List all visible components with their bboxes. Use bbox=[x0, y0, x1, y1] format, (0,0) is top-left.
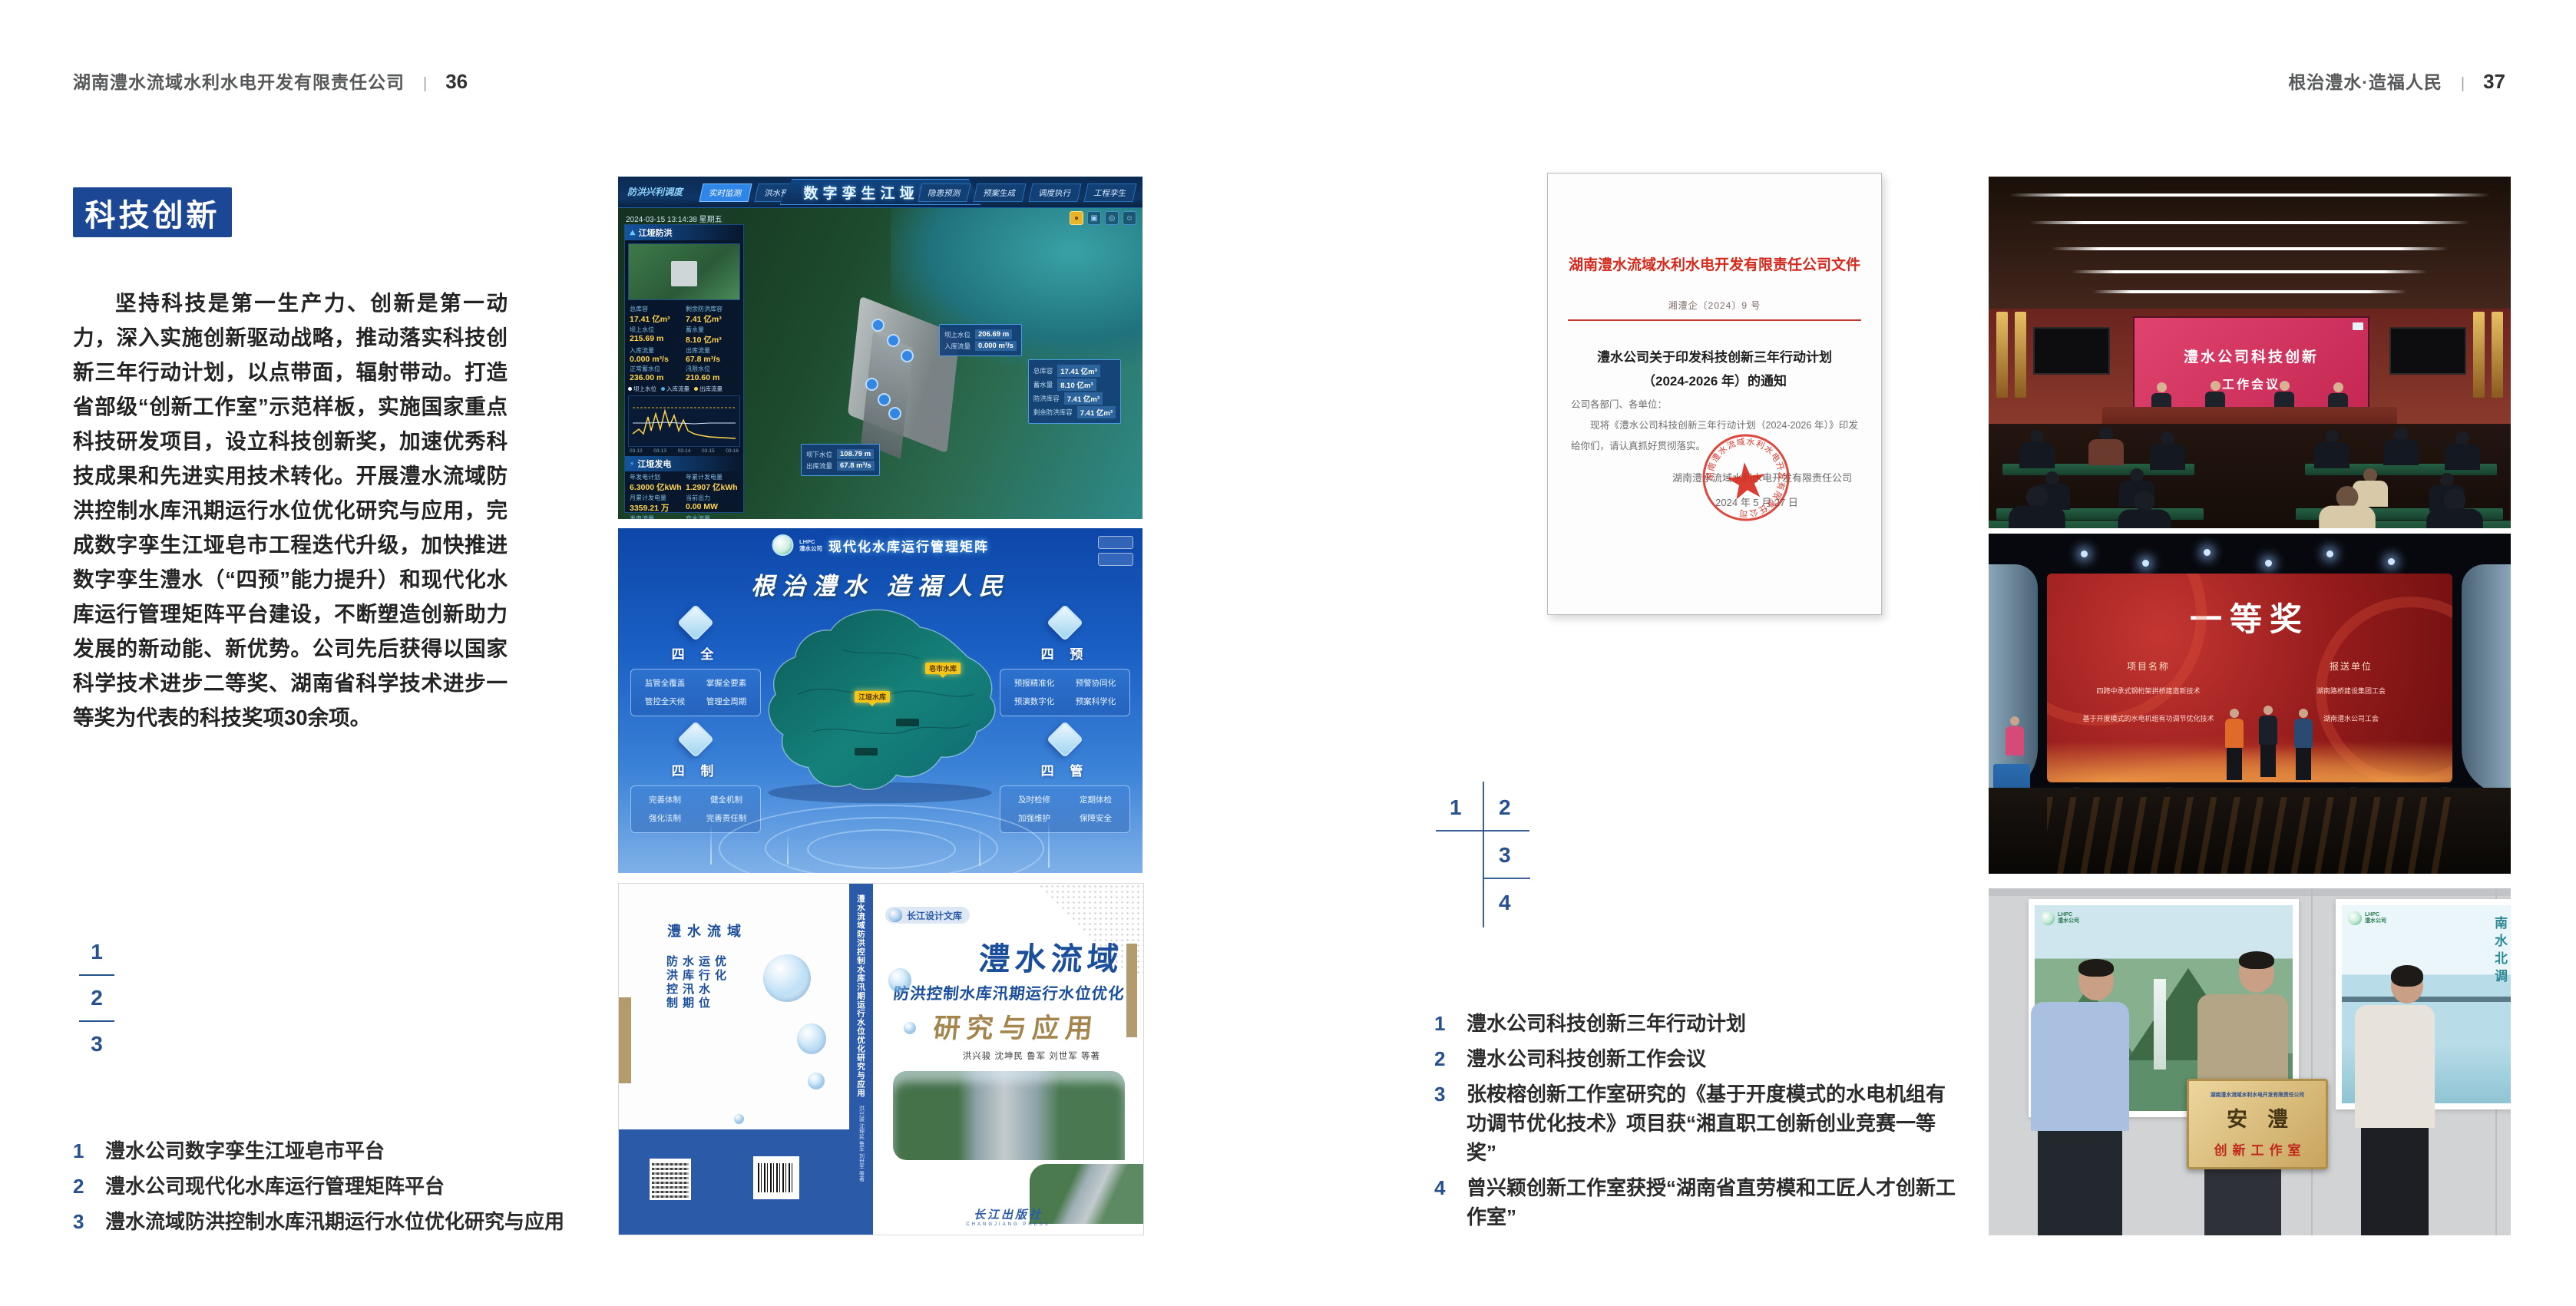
photo-matrix-dashboard: LHPC澧水公司 现代化水库运行管理矩阵 根治澧水 造福人民 江垭水库 皂市水库… bbox=[618, 528, 1143, 873]
caption-row: 1 澧水公司数字孪生江垭皂市平台 bbox=[73, 1136, 580, 1165]
stat-label: 年发电计划 bbox=[630, 473, 683, 481]
x-tick: 03-14 bbox=[678, 448, 691, 454]
chip-value: 17.41 亿m³ bbox=[1057, 365, 1100, 377]
stage-light bbox=[2326, 551, 2333, 557]
map-label-small bbox=[855, 748, 878, 755]
chip-label: 剩余防洪库容 bbox=[1033, 408, 1073, 417]
captions-right: 1 澧水公司科技创新三年行动计划 2 澧水公司科技创新工作会议 3 张桉榕创新工… bbox=[1434, 1009, 1972, 1238]
wall-trim bbox=[1989, 888, 2511, 896]
light-pillar bbox=[1048, 820, 1050, 868]
logo-subtext: 澧水公司 bbox=[799, 545, 822, 552]
dam-video-thumbnail bbox=[628, 243, 740, 300]
stat-value: 67.8 m³/s bbox=[686, 355, 739, 364]
group-card: 预报精准化 预警协同化 预演数字化 预案科学化 bbox=[1000, 669, 1130, 716]
magazine-spread: 湖南澧水流域水利水电开发有限责任公司 | 36 科技创新 坚持科技是第一生产力、… bbox=[0, 0, 2576, 1306]
section-title-box: 科技创新 bbox=[73, 187, 232, 237]
stat-label: 汛限水位 bbox=[686, 365, 739, 373]
matrix-header: LHPC澧水公司 现代化水库运行管理矩阵 bbox=[772, 534, 989, 556]
stat-label: 发电流量 bbox=[630, 514, 683, 519]
light-strip bbox=[2009, 193, 2490, 197]
caption-text: 澧水公司科技创新三年行动计划 bbox=[1467, 1009, 1746, 1038]
photo-meeting: 澧水公司科技创新 工作会议 bbox=[1989, 177, 2511, 528]
meeting-ceiling bbox=[1989, 177, 2511, 309]
person-left bbox=[2062, 962, 2129, 1235]
chip-value: 206.69 m bbox=[975, 329, 1012, 339]
group-item: 健全机制 bbox=[696, 791, 757, 809]
audience-figure bbox=[2019, 430, 2055, 468]
light-pillar bbox=[710, 825, 712, 865]
caption-number: 1 bbox=[73, 1136, 91, 1165]
wall-seam bbox=[2311, 888, 2313, 1235]
photo-plaque-group: LHPC澧水公司 LHPC澧水公司 南水北调 湖南澧水流域水利水电开发 bbox=[1989, 888, 2511, 1235]
photo-award-ceremony: 一等奖 项目名称 报送单位 四跨中承式钢桁架拱桥建造新技术 湖南路桥建设集团工会… bbox=[1989, 534, 2511, 874]
stat-label: 入库流量 bbox=[630, 346, 683, 355]
award-unit: 湖南路桥建设集团工会 bbox=[2250, 686, 2452, 696]
figure-index-1: 1 bbox=[79, 940, 114, 964]
chip-label: 防洪库容 bbox=[1033, 394, 1060, 403]
x-tick: 03-13 bbox=[653, 448, 666, 454]
x-tick: 03-16 bbox=[726, 448, 739, 454]
award-project: 基于开度模式的水电机组有功调节优化技术 bbox=[2047, 713, 2250, 723]
host-figure bbox=[2006, 716, 2024, 755]
matrix-title: 现代化水库运行管理矩阵 bbox=[828, 536, 989, 555]
group-siyu: 四 预 预报精准化 预警协同化 预演数字化 预案科学化 bbox=[1000, 610, 1130, 716]
group-item: 强化法制 bbox=[634, 809, 696, 828]
tab-hazard-forecast: 隐患预测 bbox=[918, 184, 971, 202]
caption-row: 3 澧水流域防洪控制水库汛期运行水位优化研究与应用 bbox=[73, 1207, 580, 1236]
caption-text: 澧水流域防洪控制水库汛期运行水位优化研究与应用 bbox=[105, 1207, 564, 1236]
plaque-name: 安澧 bbox=[2207, 1103, 2308, 1132]
stat-label: 剩余防洪库容 bbox=[686, 305, 739, 313]
floor-reflection bbox=[2047, 797, 2452, 874]
figure-index-2: 2 bbox=[79, 986, 114, 1010]
stat-value: 8.10 亿m³ bbox=[686, 334, 739, 346]
water-droplet bbox=[808, 1073, 825, 1089]
light-strip bbox=[2030, 221, 2469, 224]
group-name: 四 预 bbox=[1000, 643, 1130, 663]
awardee-orange bbox=[2225, 709, 2244, 780]
stat-value: 3359.21 万 bbox=[630, 502, 683, 514]
tab-plan-generate: 预案生成 bbox=[973, 184, 1026, 202]
group-item: 管理全周期 bbox=[696, 693, 757, 711]
chip-value: 0.000 m³/s bbox=[975, 341, 1017, 351]
group-item: 定期体检 bbox=[1065, 791, 1126, 809]
caption-row: 2 澧水公司现代化水库运行管理矩阵平台 bbox=[73, 1172, 580, 1201]
audience-figure bbox=[2445, 431, 2480, 470]
alert-icon: ● bbox=[1070, 211, 1083, 225]
audience-area bbox=[1989, 424, 2511, 528]
chip-label: 坝上水位 bbox=[944, 330, 971, 339]
stat-value: 7.41 亿m³ bbox=[686, 313, 739, 325]
gate-marker bbox=[901, 349, 914, 362]
x-tick: 03-15 bbox=[702, 448, 715, 454]
panel-header-flood: ⛰ 江垭防洪 bbox=[625, 225, 743, 240]
back-brown-tab bbox=[619, 997, 631, 1083]
group-item: 保障安全 bbox=[1065, 809, 1126, 828]
red-company-seal: 湖南澧水流域水利水电开发有限责任公司 bbox=[1695, 427, 1797, 528]
stage-light bbox=[2204, 549, 2211, 556]
screen-title-line2: 工作会议 bbox=[2222, 374, 2280, 392]
header-divider: | bbox=[423, 75, 427, 93]
poster-calligraphy: 南水北调 bbox=[2490, 916, 2509, 987]
stage-light bbox=[2265, 560, 2272, 567]
panelist-figure bbox=[2205, 381, 2225, 410]
qr-code bbox=[650, 1159, 691, 1200]
front-brown-bar bbox=[1126, 944, 1137, 1037]
back-title-1: 澧水流域 bbox=[663, 924, 744, 947]
stage-light bbox=[2388, 558, 2395, 565]
person-right bbox=[2379, 968, 2435, 1235]
panel-title: 江垭发电 bbox=[637, 458, 671, 470]
group-sizhi: 四 制 完善体制 健全机制 强化法制 完善责任制 bbox=[630, 726, 761, 833]
document-title-line2: （2024-2026 年）的通知 bbox=[1548, 369, 1881, 393]
book-front-cover: 长江设计文库 澧水流域 防洪控制水库汛期运行水位优化 研究与应用 洪兴骏 沈坤民… bbox=[873, 884, 1143, 1235]
monitor-icon bbox=[677, 604, 714, 641]
light-strip bbox=[2093, 290, 2406, 293]
award-col-unit: 报送单位 bbox=[2250, 660, 2452, 673]
group-item: 监管全覆盖 bbox=[634, 674, 696, 693]
award-project: 四跨中承式钢桁架拱桥建造新技术 bbox=[2047, 686, 2250, 696]
document-title-line1: 澧水公司关于印发科技创新三年行动计划 bbox=[1548, 346, 1881, 369]
series-badge: 长江设计文库 bbox=[885, 907, 970, 924]
screen-logo bbox=[2353, 322, 2363, 330]
light-pillar bbox=[979, 828, 980, 866]
plaque-company: 湖南澧水流域水利水电开发有限责任公司 bbox=[2211, 1090, 2304, 1098]
gate-marker bbox=[878, 393, 891, 406]
stat-label: 年累计发电量 bbox=[686, 473, 739, 481]
waterfall bbox=[2154, 979, 2166, 1070]
award-row: 基于开度模式的水电机组有功调节优化技术 湖南澧水公司工会 bbox=[2047, 713, 2452, 723]
caption-number: 3 bbox=[1434, 1080, 1453, 1167]
forecast-icon bbox=[1047, 604, 1083, 641]
power-stats-grid: 年发电计划6.3000 亿kWh 年累计发电量1.2907 亿kWh 月累计发电… bbox=[625, 471, 743, 519]
stat-value: 6.3000 亿kWh bbox=[630, 481, 683, 493]
tab-dispatch-execute: 调度执行 bbox=[1028, 184, 1081, 202]
index-vline bbox=[1483, 782, 1484, 927]
matrix-slogan: 根治澧水 造福人民 bbox=[751, 567, 1010, 601]
ripple-ring bbox=[807, 829, 956, 869]
book-title-sub: 防洪控制水库汛期运行水位优化 bbox=[892, 980, 1126, 1003]
index-hline bbox=[1483, 878, 1530, 879]
red-rule bbox=[1568, 319, 1861, 321]
gate-marker bbox=[871, 319, 885, 332]
screen-skyline bbox=[2047, 733, 2452, 782]
figure-index-3: 3 bbox=[1499, 843, 1511, 868]
group-item: 预警协同化 bbox=[1065, 674, 1126, 693]
dashboard-top-bar: 防洪兴利调度 实时监测 洪水预报 防洪预警 数字孪生江垭皂市 隐患预测 预案生成… bbox=[618, 177, 1143, 208]
chip-label: 入库流量 bbox=[944, 342, 971, 351]
group-card: 监管全覆盖 掌握全要素 管控全天候 管理全周期 bbox=[630, 669, 761, 716]
stat-label: 总库容 bbox=[630, 305, 683, 313]
x-tick: 03-12 bbox=[630, 448, 643, 454]
group-siquan: 四 全 监管全覆盖 掌握全要素 管控全天候 管理全周期 bbox=[630, 610, 761, 716]
book-title-main: 澧水流域 bbox=[977, 933, 1125, 979]
water-droplet bbox=[904, 1022, 916, 1034]
module-label: 防洪兴利调度 bbox=[627, 185, 683, 198]
tab-project-twin: 工程孪生 bbox=[1083, 184, 1136, 202]
info-chip-capacity: 总库容17.41 亿m³ 蓄水量8.10 亿m³ 防洪库容7.41 亿m³ 剩余… bbox=[1028, 359, 1121, 424]
back-title-2: 防洪控制水库汛期运行水位优化 bbox=[663, 955, 744, 1023]
section-title: 科技创新 bbox=[85, 190, 220, 235]
caption-row: 1 澧水公司科技创新三年行动计划 bbox=[1434, 1009, 1972, 1038]
audience-figure bbox=[2150, 431, 2185, 470]
figure-index-left: 1 2 3 bbox=[79, 940, 114, 1056]
book-spine: 澧水流域防洪控制水库汛期运行水位优化研究与应用 洪兴骏 沈坤民 鲁军 刘世军 等… bbox=[849, 884, 873, 1235]
gate-marker bbox=[865, 378, 878, 391]
award-col-project: 项目名称 bbox=[2047, 660, 2250, 673]
stat-label: 弃水流量 bbox=[686, 514, 739, 519]
stage-light bbox=[2142, 560, 2149, 567]
led-screen: 一等奖 项目名称 报送单位 四跨中承式钢桁架拱桥建造新技术 湖南路桥建设集团工会… bbox=[2047, 574, 2452, 782]
page-number-left: 36 bbox=[445, 70, 468, 94]
caption-number: 2 bbox=[1434, 1044, 1453, 1073]
wall-lamp bbox=[1996, 312, 2008, 398]
left-stats-panel: ⛰ 江垭防洪 总库容17.41 亿m³ 剩余防洪库容7.41 亿m³ 坝上水位2… bbox=[624, 224, 744, 513]
stat-label: 当前出力 bbox=[686, 494, 739, 502]
right-page-header: 根治澧水·造福人民 | 37 bbox=[2288, 68, 2505, 94]
audience-figure bbox=[2314, 430, 2349, 468]
plaque-title: 创新工作室 bbox=[2209, 1139, 2306, 1159]
mountain-icon: ⛰ bbox=[630, 229, 636, 237]
panel-title: 江垭防洪 bbox=[639, 226, 673, 239]
group-item: 及时检修 bbox=[1004, 791, 1065, 809]
map-label-small bbox=[896, 719, 919, 726]
dam-thumb-structure bbox=[671, 261, 698, 286]
captions-left: 1 澧水公司数字孪生江垭皂市平台 2 澧水公司现代化水库运行管理矩阵平台 3 澧… bbox=[73, 1136, 580, 1242]
wall-lamp bbox=[2015, 312, 2026, 398]
panel-header-power: ⚡ 江垭发电 bbox=[625, 456, 743, 471]
index-hline bbox=[1436, 830, 1529, 832]
caption-row: 3 张桉榕创新工作室研究的《基于开度模式的水电机组有功调节优化技术》项目获“湘直… bbox=[1434, 1080, 1972, 1167]
map-label-jiangya: 江垭水库 bbox=[855, 691, 890, 703]
legend-item: 入库流量 bbox=[666, 385, 689, 393]
wall-tv bbox=[2389, 327, 2466, 375]
caption-number: 3 bbox=[73, 1207, 91, 1236]
stat-value: 236.00 m bbox=[630, 373, 683, 382]
stat-value: 0.000 m³/s bbox=[630, 355, 683, 364]
screen-title-line1: 澧水公司科技创新 bbox=[2184, 346, 2319, 366]
publisher-name-en: CHANGJIANG PRESS bbox=[873, 1222, 1143, 1227]
group-item: 预案科学化 bbox=[1065, 693, 1126, 711]
group-siguan: 四 管 及时检修 定期体检 加强维护 保障安全 bbox=[1000, 726, 1130, 833]
group-item: 完善体制 bbox=[634, 791, 696, 809]
chart-x-labels: 03-12 03-13 03-14 03-15 03-16 bbox=[625, 448, 743, 454]
company-name: 湖南澧水流域水利水电开发有限责任公司 bbox=[73, 68, 405, 94]
photo-official-document: 湖南澧水流域水利水电开发有限责任公司文件 湘澧企〔2024〕9 号 澧水公司关于… bbox=[1547, 173, 1882, 615]
gate-marker bbox=[888, 407, 901, 420]
gate-marker bbox=[887, 334, 900, 347]
toolbar-icons: ● ▣ ◎ ☺ bbox=[1070, 211, 1136, 225]
chip-value: 67.8 m³/s bbox=[837, 461, 875, 471]
light-pillar bbox=[787, 834, 789, 865]
legend-item: 坝上水位 bbox=[633, 385, 656, 393]
matrix-button bbox=[1098, 536, 1133, 549]
audience-figure bbox=[2009, 486, 2065, 528]
stat-value: 210.60 m bbox=[686, 373, 739, 382]
cover-photo-gorge-dam bbox=[893, 1071, 1125, 1160]
caption-number: 1 bbox=[1434, 1009, 1453, 1038]
stat-label: 蓄水量 bbox=[686, 326, 739, 334]
group-item: 预报精准化 bbox=[1004, 674, 1065, 693]
audience-figure bbox=[2118, 491, 2171, 529]
lhpc-logo: LHPC澧水公司 bbox=[2041, 911, 2079, 925]
stage-side-wall bbox=[2462, 564, 2511, 795]
stat-label: 坝上水位 bbox=[630, 326, 683, 334]
wall-lamp bbox=[2473, 312, 2485, 398]
caption-text: 张桉榕创新工作室研究的《基于开度模式的水电机组有功调节优化技术》项目获“湘直职工… bbox=[1467, 1080, 1958, 1167]
chip-value: 108.79 m bbox=[837, 449, 874, 459]
index-divider bbox=[79, 1020, 114, 1022]
wall-lamp bbox=[2492, 312, 2503, 398]
figure-index-1: 1 bbox=[1450, 795, 1462, 820]
flood-stats-grid: 总库容17.41 亿m³ 剩余防洪库容7.41 亿m³ 坝上水位215.69 m… bbox=[625, 303, 743, 384]
photo-digital-twin-dashboard: 防洪兴利调度 实时监测 洪水预报 防洪预警 数字孪生江垭皂市 隐患预测 预案生成… bbox=[618, 177, 1143, 519]
panelist-figure bbox=[2274, 381, 2294, 410]
group-item: 掌握全要素 bbox=[696, 674, 757, 693]
body-paragraph: 坚持科技是第一生产力、创新是第一动力，深入实施创新驱动战略，推动落实科技创新三年… bbox=[73, 286, 508, 735]
page-slogan: 根治澧水·造福人民 bbox=[2288, 68, 2442, 94]
stat-value: 17.41 亿m³ bbox=[630, 313, 683, 325]
book-authors: 洪兴骏 沈坤民 鲁军 刘世军 等著 bbox=[963, 1050, 1100, 1062]
stat-label: 正常蓄水位 bbox=[630, 365, 683, 373]
changjiang-design-logo bbox=[888, 908, 902, 922]
audience-figure bbox=[2088, 427, 2124, 465]
document-salutation: 公司各部门、各单位： bbox=[1571, 395, 1858, 415]
figure-index-3: 3 bbox=[79, 1032, 114, 1056]
locate-icon: ◎ bbox=[1105, 211, 1119, 225]
logo-text: LHPC bbox=[799, 538, 822, 545]
stat-value: 0.00 MW bbox=[686, 502, 739, 511]
matrix-button bbox=[1098, 553, 1133, 566]
spine-authors: 洪兴骏 沈坤民 鲁军 刘世军 等著 bbox=[858, 1106, 865, 1182]
light-strip bbox=[2052, 247, 2449, 250]
maintenance-icon bbox=[1047, 721, 1083, 758]
lhpc-logo-icon bbox=[772, 534, 793, 556]
caption-text: 澧水公司科技创新工作会议 bbox=[1467, 1044, 1706, 1073]
index-divider bbox=[79, 974, 114, 976]
chip-value: 7.41 亿m³ bbox=[1064, 392, 1103, 405]
watershed-terrain-map bbox=[753, 602, 1007, 809]
stage-light bbox=[2081, 551, 2088, 557]
chip-label: 蓄水量 bbox=[1033, 380, 1053, 389]
award-unit: 湖南澧水公司工会 bbox=[2250, 713, 2452, 723]
book-title-tail: 研究与应用 bbox=[931, 1007, 1100, 1046]
building-icon bbox=[677, 721, 714, 758]
tab-realtime-monitor: 实时监测 bbox=[699, 184, 752, 202]
stage-side-wall bbox=[1989, 564, 2038, 795]
info-chip-upstream: 坝上水位206.69 m 入库流量0.000 m³/s bbox=[939, 324, 1022, 356]
document-title: 澧水公司关于印发科技创新三年行动计划 （2024-2026 年）的通知 bbox=[1548, 346, 1881, 393]
barcode bbox=[753, 1156, 799, 1199]
map-label-zaoshi: 皂市水库 bbox=[925, 663, 961, 674]
chip-label: 坝下水位 bbox=[806, 450, 832, 459]
stat-value: 1.2907 亿kWh bbox=[686, 481, 739, 493]
award-columns: 项目名称 报送单位 bbox=[2047, 660, 2452, 673]
photo-book-cover: 澧水流域 防洪控制水库汛期运行水位优化 研究与应用 澧水流域防洪控制水库汛期运行… bbox=[618, 883, 1144, 1235]
chart-legend: 坝上水位 入库流量 出库流量 bbox=[625, 384, 743, 394]
publisher-name: 长江出版社 bbox=[974, 1209, 1043, 1222]
water-droplet bbox=[734, 1114, 744, 1124]
group-item: 预演数字化 bbox=[1004, 693, 1065, 711]
right-tab-group: 隐患预测 预案生成 调度执行 工程孪生 bbox=[920, 184, 1135, 202]
audience-figure bbox=[2383, 427, 2419, 465]
chip-value: 8.10 亿m³ bbox=[1057, 379, 1096, 391]
header-divider: | bbox=[2461, 75, 2465, 93]
layers-icon: ▣ bbox=[1087, 211, 1101, 225]
water-droplet bbox=[763, 954, 811, 1002]
water-droplet bbox=[797, 1023, 826, 1054]
series-badge-text: 长江设计文库 bbox=[907, 909, 962, 922]
presenter-suit bbox=[2259, 706, 2277, 777]
group-item: 管控全天候 bbox=[634, 693, 696, 711]
caption-text: 澧水公司现代化水库运行管理矩阵平台 bbox=[105, 1172, 445, 1201]
group-name: 四 全 bbox=[630, 643, 761, 663]
document-number: 湘澧企〔2024〕9 号 bbox=[1548, 299, 1881, 312]
chip-label: 出库流量 bbox=[806, 461, 832, 471]
group-name: 四 管 bbox=[1000, 760, 1130, 779]
screen-swirl bbox=[2047, 574, 2207, 726]
stat-label: 月累计发电量 bbox=[630, 494, 683, 502]
document-header: 湖南澧水流域水利水电开发有限责任公司文件 bbox=[1548, 253, 1881, 274]
user-icon: ☺ bbox=[1123, 211, 1136, 225]
figure-index-4: 4 bbox=[1499, 891, 1511, 915]
spine-title: 澧水流域防洪控制水库汛期运行水位优化研究与应用 bbox=[855, 894, 867, 1098]
caption-text: 曾兴颖创新工作室获授“湖南省直劳模和工匠人才创新工作室” bbox=[1467, 1173, 1958, 1232]
water-level-chart bbox=[628, 395, 740, 447]
info-chip-downstream: 坝下水位108.79 m 出库流量67.8 m³/s bbox=[801, 444, 880, 476]
caption-number: 2 bbox=[73, 1172, 91, 1201]
publisher-block: 长江出版社 CHANGJIANG PRESS bbox=[873, 1206, 1143, 1227]
caption-text: 澧水公司数字孪生江垭皂市平台 bbox=[105, 1136, 385, 1165]
page-number-right: 37 bbox=[2483, 70, 2505, 94]
light-strip bbox=[2072, 270, 2427, 273]
stat-value: 215.69 m bbox=[630, 334, 683, 343]
chip-label: 总库容 bbox=[1033, 366, 1053, 375]
caption-row: 2 澧水公司科技创新工作会议 bbox=[1434, 1044, 1972, 1073]
stat-label: 出库流量 bbox=[686, 346, 739, 355]
audience-figure bbox=[2426, 489, 2483, 528]
caption-number: 4 bbox=[1434, 1173, 1453, 1232]
audience-figure bbox=[2319, 486, 2376, 528]
innovation-studio-plaque: 湖南澧水流域水利水电开发有限责任公司 安澧 创新工作室 bbox=[2187, 1079, 2328, 1169]
awardee-blue bbox=[2294, 709, 2313, 780]
legend-item: 出库流量 bbox=[699, 385, 723, 393]
wall-tv bbox=[2033, 327, 2110, 375]
timestamp: 2024-03-15 13:14:38 星期五 bbox=[626, 213, 723, 224]
figure-index-2: 2 bbox=[1499, 795, 1511, 820]
group-name: 四 制 bbox=[630, 760, 761, 779]
water-droplet bbox=[888, 968, 911, 993]
chip-value: 7.41 亿m³ bbox=[1077, 406, 1116, 418]
bolt-icon: ⚡ bbox=[630, 460, 634, 468]
caption-row: 4 曾兴颖创新工作室获授“湖南省直劳模和工匠人才创新工作室” bbox=[1434, 1173, 1972, 1232]
lhpc-logo: LHPC澧水公司 bbox=[2348, 911, 2386, 925]
left-page-header: 湖南澧水流域水利水电开发有限责任公司 | 36 bbox=[73, 68, 468, 94]
award-row: 四跨中承式钢桁架拱桥建造新技术 湖南路桥建设集团工会 bbox=[2047, 686, 2452, 696]
